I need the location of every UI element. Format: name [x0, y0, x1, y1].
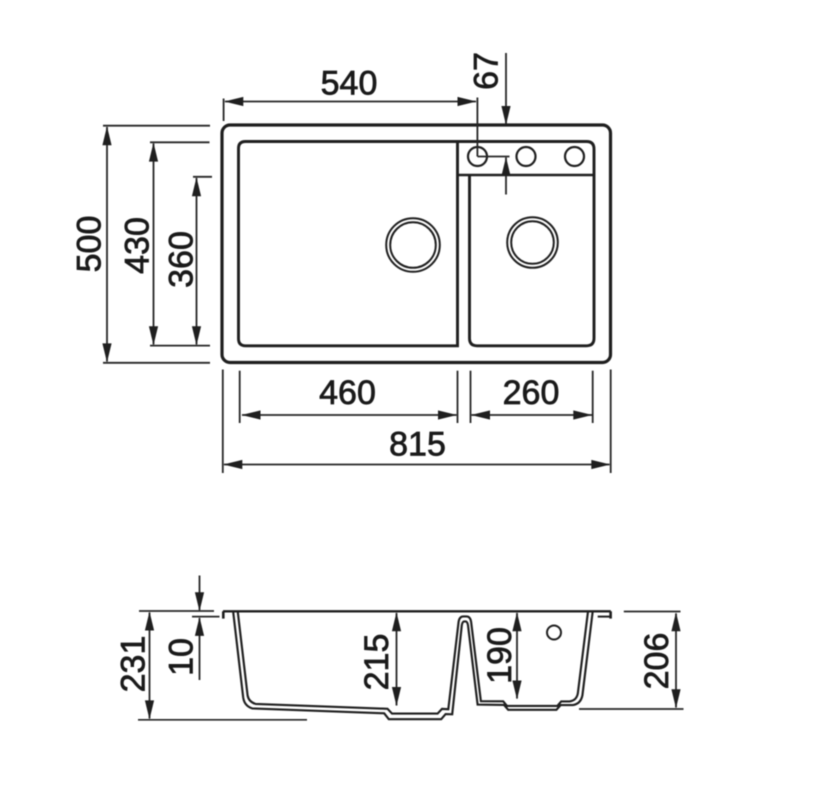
svg-text:500: 500: [71, 216, 109, 273]
svg-text:430: 430: [119, 217, 157, 274]
svg-text:815: 815: [389, 426, 446, 464]
svg-text:67: 67: [468, 52, 506, 90]
svg-text:215: 215: [358, 634, 396, 691]
svg-text:10: 10: [163, 638, 201, 676]
svg-text:540: 540: [321, 65, 378, 103]
svg-text:360: 360: [163, 231, 201, 288]
svg-text:260: 260: [503, 374, 560, 412]
svg-text:460: 460: [319, 374, 376, 412]
svg-text:190: 190: [481, 627, 519, 684]
svg-text:231: 231: [115, 636, 153, 693]
svg-text:206: 206: [638, 633, 676, 690]
